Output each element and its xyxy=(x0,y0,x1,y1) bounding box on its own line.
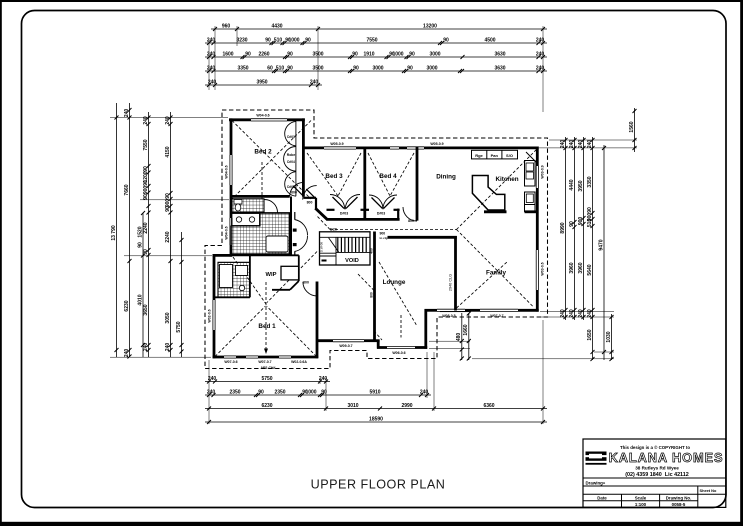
svg-text:Bed 3: Bed 3 xyxy=(325,173,343,180)
svg-text:13 790: 13 790 xyxy=(111,225,117,241)
svg-text:2940 CLG: 2940 CLG xyxy=(449,274,453,291)
svg-text:Robe: Robe xyxy=(287,153,296,157)
svg-text:S/O: S/O xyxy=(506,153,513,158)
svg-text:38 Rutleys Rd Wyee: 38 Rutleys Rd Wyee xyxy=(635,466,679,471)
svg-text:Scale: Scale xyxy=(635,495,647,500)
svg-text:3000: 3000 xyxy=(429,51,440,57)
svg-text:8990: 8990 xyxy=(560,222,566,233)
svg-text:1560: 1560 xyxy=(629,121,635,132)
svg-text:D#05: D#05 xyxy=(287,185,295,189)
svg-text:(02) 4359 1840 Lic 42112: (02) 4359 1840 Lic 42112 xyxy=(625,472,689,478)
svg-text:4500: 4500 xyxy=(484,37,495,43)
svg-text:2350: 2350 xyxy=(274,389,285,395)
svg-text:90: 90 xyxy=(305,37,311,43)
svg-text:3350: 3350 xyxy=(587,176,593,187)
svg-text:800: 800 xyxy=(370,292,374,298)
svg-text:240: 240 xyxy=(124,109,130,118)
svg-text:Rge: Rge xyxy=(475,153,483,158)
svg-text:2240: 2240 xyxy=(165,231,171,242)
svg-text:510: 510 xyxy=(274,37,283,43)
svg-text:1:100: 1:100 xyxy=(635,502,647,507)
svg-text:13200: 13200 xyxy=(423,23,437,29)
svg-text:4440: 4440 xyxy=(569,179,575,190)
svg-text:KALANA HOMES: KALANA HOMES xyxy=(609,450,724,465)
svg-text:WIP: WIP xyxy=(266,272,277,278)
svg-text:D#03: D#03 xyxy=(340,212,348,216)
svg-text:Bed 4: Bed 4 xyxy=(379,173,397,180)
svg-text:510: 510 xyxy=(276,65,285,71)
svg-text:240: 240 xyxy=(578,140,584,149)
svg-text:Dining: Dining xyxy=(436,174,456,181)
svg-text:1030: 1030 xyxy=(606,331,612,342)
svg-text:2260: 2260 xyxy=(258,51,269,57)
svg-text:Lounge: Lounge xyxy=(383,279,406,286)
svg-text:240: 240 xyxy=(578,309,584,318)
svg-text:VOID: VOID xyxy=(345,258,359,264)
svg-text:Family: Family xyxy=(486,270,506,277)
svg-text:240: 240 xyxy=(310,79,319,85)
svg-text:5750: 5750 xyxy=(176,321,182,332)
svg-text:3010: 3010 xyxy=(347,403,358,409)
svg-text:D#03: D#03 xyxy=(377,212,385,216)
svg-text:800: 800 xyxy=(307,201,313,205)
svg-text:2240: 2240 xyxy=(143,222,149,233)
svg-text:3230: 3230 xyxy=(236,37,247,43)
svg-text:240: 240 xyxy=(165,343,171,352)
svg-text:900: 900 xyxy=(578,217,584,226)
svg-text:90: 90 xyxy=(569,221,575,227)
svg-text:18590: 18590 xyxy=(369,416,383,422)
svg-text:1910: 1910 xyxy=(363,51,374,57)
svg-text:W07-0.7: W07-0.7 xyxy=(490,314,503,318)
svg-text:7660: 7660 xyxy=(124,184,130,195)
svg-text:400: 400 xyxy=(370,248,374,254)
svg-text:480: 480 xyxy=(456,333,462,342)
svg-text:240: 240 xyxy=(560,309,566,318)
svg-text:240: 240 xyxy=(569,140,575,149)
svg-text:Drawing»: Drawing» xyxy=(586,480,606,485)
svg-text:to clg: to clg xyxy=(380,236,388,240)
svg-text:D.W-08: D.W-08 xyxy=(320,242,324,252)
svg-text:AFS CH#: AFS CH# xyxy=(261,366,276,370)
svg-text:240: 240 xyxy=(560,140,566,149)
svg-text:4010: 4010 xyxy=(137,294,143,305)
svg-text:240: 240 xyxy=(207,389,216,395)
svg-text:240: 240 xyxy=(207,37,216,43)
svg-text:D#04: D#04 xyxy=(287,160,295,164)
svg-text:Pan: Pan xyxy=(491,153,499,158)
svg-text:5750: 5750 xyxy=(261,376,272,382)
svg-text:3950: 3950 xyxy=(256,79,267,85)
svg-text:3630: 3630 xyxy=(494,51,505,57)
svg-text:90: 90 xyxy=(143,249,149,255)
svg-text:240: 240 xyxy=(569,309,575,318)
svg-text:240: 240 xyxy=(207,65,216,71)
svg-text:7550: 7550 xyxy=(366,37,377,43)
svg-text:1600: 1600 xyxy=(222,51,233,57)
svg-text:7550: 7550 xyxy=(143,139,149,150)
svg-text:Drawing No.: Drawing No. xyxy=(666,495,692,500)
svg-text:900: 900 xyxy=(143,186,149,195)
svg-text:900: 900 xyxy=(380,232,386,236)
svg-text:3630: 3630 xyxy=(494,65,505,71)
svg-text:90: 90 xyxy=(287,65,293,71)
svg-text:W05-0.9: W05-0.9 xyxy=(430,142,443,146)
svg-text:3960: 3960 xyxy=(578,262,584,273)
svg-text:3050: 3050 xyxy=(165,312,171,323)
svg-text:4430: 4430 xyxy=(271,23,282,29)
svg-text:Kitchen: Kitchen xyxy=(495,176,518,183)
svg-text:3960: 3960 xyxy=(569,262,575,273)
svg-text:1520: 1520 xyxy=(137,226,143,237)
svg-text:800: 800 xyxy=(408,219,414,223)
svg-text:W07-0.6: W07-0.6 xyxy=(224,360,237,364)
svg-text:90: 90 xyxy=(265,37,271,43)
svg-text:W05-0.9: W05-0.9 xyxy=(330,142,343,146)
svg-text:90: 90 xyxy=(165,193,171,199)
svg-text:90: 90 xyxy=(287,51,293,57)
svg-text:90: 90 xyxy=(587,207,593,213)
svg-text:D#03: D#03 xyxy=(287,135,295,139)
svg-text:5640: 5640 xyxy=(587,264,593,275)
svg-text:Bed 1: Bed 1 xyxy=(258,323,276,330)
svg-text:W08-0.5: W08-0.5 xyxy=(442,314,455,318)
svg-text:W07-0.7: W07-0.7 xyxy=(258,360,271,364)
svg-text:Bed 2: Bed 2 xyxy=(254,149,272,156)
svg-text:510: 510 xyxy=(587,219,593,228)
svg-text:6360: 6360 xyxy=(483,403,494,409)
svg-text:240: 240 xyxy=(587,309,593,318)
svg-text:W04-0.6: W04-0.6 xyxy=(225,165,229,178)
svg-text:2350: 2350 xyxy=(229,389,240,395)
svg-text:3650: 3650 xyxy=(143,304,149,315)
svg-text:90: 90 xyxy=(352,51,358,57)
svg-text:4150: 4150 xyxy=(165,146,171,157)
svg-text:90: 90 xyxy=(143,194,149,200)
svg-text:90: 90 xyxy=(137,242,143,248)
svg-text:1000: 1000 xyxy=(305,389,316,395)
svg-text:90: 90 xyxy=(165,206,171,212)
svg-text:W03-0.6: W03-0.6 xyxy=(541,262,545,275)
svg-text:1660: 1660 xyxy=(463,324,469,335)
svg-text:240: 240 xyxy=(124,349,130,358)
svg-text:90: 90 xyxy=(143,180,149,186)
svg-text:1000: 1000 xyxy=(392,51,403,57)
svg-text:3000: 3000 xyxy=(372,65,383,71)
svg-text:1650: 1650 xyxy=(587,329,593,340)
svg-text:240: 240 xyxy=(207,51,216,57)
svg-text:6230: 6230 xyxy=(261,403,272,409)
svg-text:W09-0.7: W09-0.7 xyxy=(339,344,352,348)
svg-text:9470: 9470 xyxy=(598,239,604,250)
svg-text:5910: 5910 xyxy=(369,389,380,395)
svg-text:W04-0.6: W04-0.6 xyxy=(225,226,229,239)
svg-text:90: 90 xyxy=(353,65,359,71)
svg-text:960: 960 xyxy=(222,23,231,29)
svg-text:90: 90 xyxy=(143,166,149,172)
svg-text:3950: 3950 xyxy=(578,180,584,191)
svg-text:90: 90 xyxy=(258,389,264,395)
svg-text:W02-0.6: W02-0.6 xyxy=(208,309,212,322)
svg-text:W04-0.6: W04-0.6 xyxy=(256,114,269,118)
svg-text:W03-0.9: W03-0.9 xyxy=(541,165,545,178)
svg-text:3000: 3000 xyxy=(426,65,437,71)
svg-text:600: 600 xyxy=(303,281,309,285)
svg-text:D20: D20 xyxy=(330,228,337,232)
svg-text:W06-0.6: W06-0.6 xyxy=(392,351,405,355)
svg-text:240: 240 xyxy=(587,140,593,149)
svg-text:90: 90 xyxy=(407,65,413,71)
svg-text:3350: 3350 xyxy=(237,65,248,71)
svg-text:90: 90 xyxy=(443,37,449,43)
svg-text:600: 600 xyxy=(291,191,297,195)
svg-text:60: 60 xyxy=(267,65,273,71)
svg-text:6230: 6230 xyxy=(124,300,130,311)
svg-text:90: 90 xyxy=(245,51,251,57)
svg-text:1000: 1000 xyxy=(288,37,299,43)
svg-text:2990: 2990 xyxy=(401,403,412,409)
svg-text:UPPER FLOOR PLAN: UPPER FLOOR PLAN xyxy=(311,478,446,492)
svg-text:W02-0.6A: W02-0.6A xyxy=(291,360,307,364)
svg-text:0058-5: 0058-5 xyxy=(672,502,686,507)
svg-text:90: 90 xyxy=(409,51,415,57)
svg-text:Date: Date xyxy=(597,495,607,500)
svg-text:Sheet No: Sheet No xyxy=(700,488,717,493)
